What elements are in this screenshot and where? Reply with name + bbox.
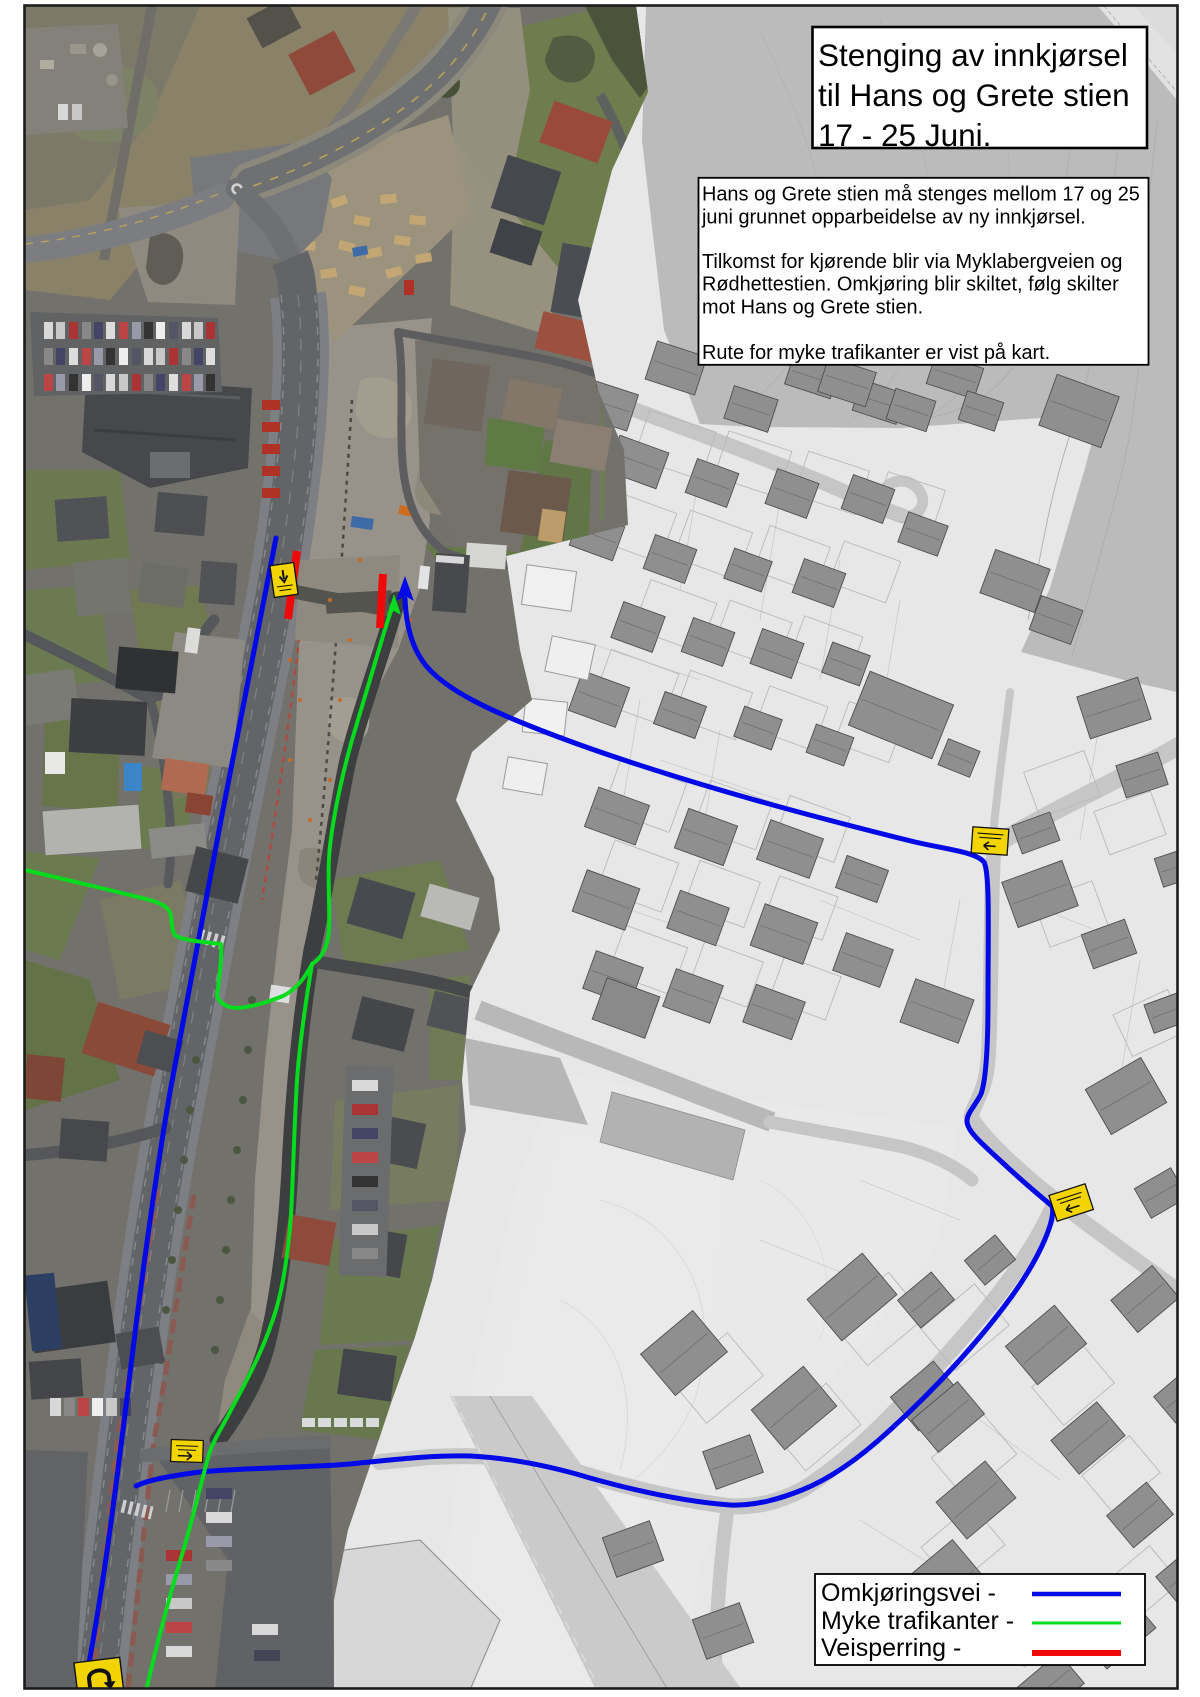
svg-text:Hans og Grete stien må stenges: Hans og Grete stien må stenges mellom 17… [702,184,1140,206]
svg-text:Myke trafikanter -: Myke trafikanter - [821,1607,1014,1635]
svg-text:juni grunnet opparbeidelse av: juni grunnet opparbeidelse av ny innkjør… [701,207,1086,229]
svg-text:Rute for myke trafikanter er v: Rute for myke trafikanter er vist på kar… [702,342,1050,364]
svg-text:Rødhettestien. Omkjøring blir: Rødhettestien. Omkjøring blir skiltet, f… [702,274,1119,296]
svg-text:Stenging av innkjørsel: Stenging av innkjørsel [818,37,1128,73]
svg-text:Tilkomst for kjørende blir via: Tilkomst for kjørende blir via Myklaberg… [702,251,1122,273]
svg-text:til Hans og Grete stien: til Hans og Grete stien [818,77,1130,113]
svg-text:Veisperring -: Veisperring - [821,1634,961,1662]
svg-text:mot Hans og Grete stien.: mot Hans og Grete stien. [702,297,923,319]
svg-text:Omkjøringsvei -: Omkjøringsvei - [821,1579,996,1607]
svg-text:17 - 25 Juni.: 17 - 25 Juni. [818,117,991,153]
